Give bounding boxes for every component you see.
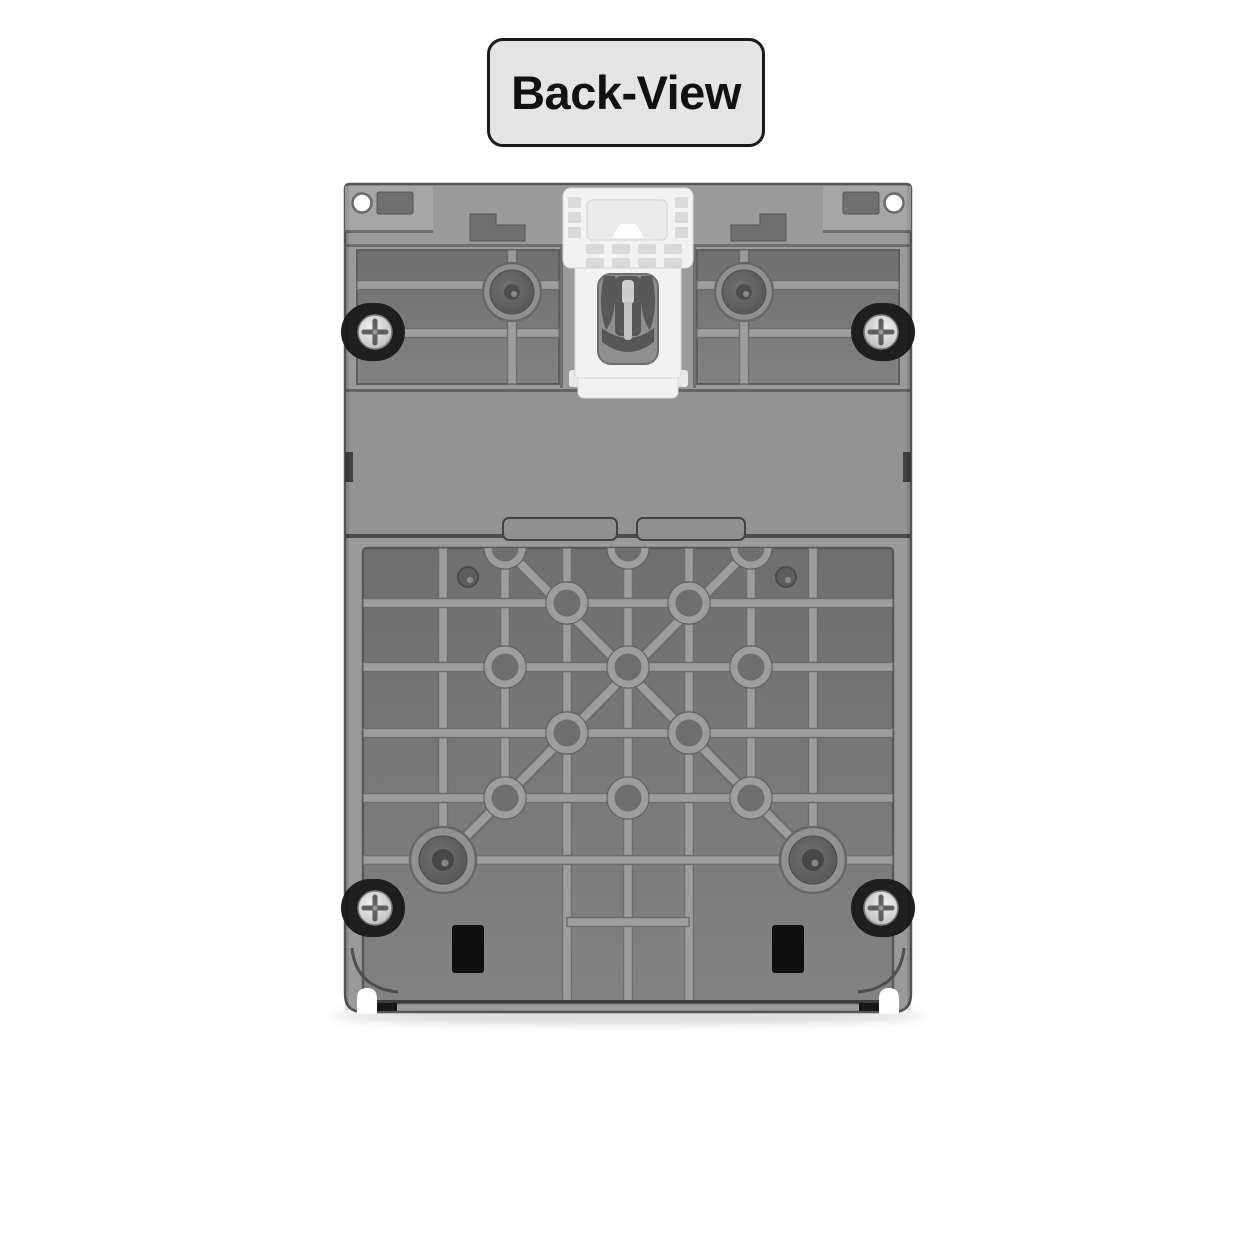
tab-recess-right — [843, 192, 879, 214]
mounting-hole-top-left — [353, 194, 372, 213]
bottom-notch-right — [879, 988, 899, 1014]
vent-slot-bottom-left — [452, 925, 484, 973]
din-rail-clip — [563, 188, 693, 398]
latch-tab-right — [637, 518, 745, 540]
screw-bottom-left — [341, 879, 405, 937]
lower-section — [341, 527, 915, 1014]
boss-top-left — [483, 263, 541, 321]
device-back-illustration — [0, 0, 1250, 1250]
boss-bottom-left — [410, 827, 476, 893]
pilot-hole-left — [458, 567, 478, 587]
mid-band — [345, 389, 911, 540]
bottom-notch-left — [357, 988, 377, 1014]
screw-bottom-right — [851, 879, 915, 937]
screw-top-right — [851, 303, 915, 361]
latch-tab-left — [503, 518, 617, 540]
screw-top-left — [341, 303, 405, 361]
pilot-hole-right — [776, 567, 796, 587]
mounting-hole-top-right — [885, 194, 904, 213]
din-clip-spring-fork — [598, 274, 658, 364]
back-view-figure: Back-View — [0, 0, 1250, 1250]
boss-top-right — [715, 263, 773, 321]
boss-bottom-right — [780, 827, 846, 893]
vent-slot-bottom-right — [772, 925, 804, 973]
tab-recess-left — [377, 192, 413, 214]
